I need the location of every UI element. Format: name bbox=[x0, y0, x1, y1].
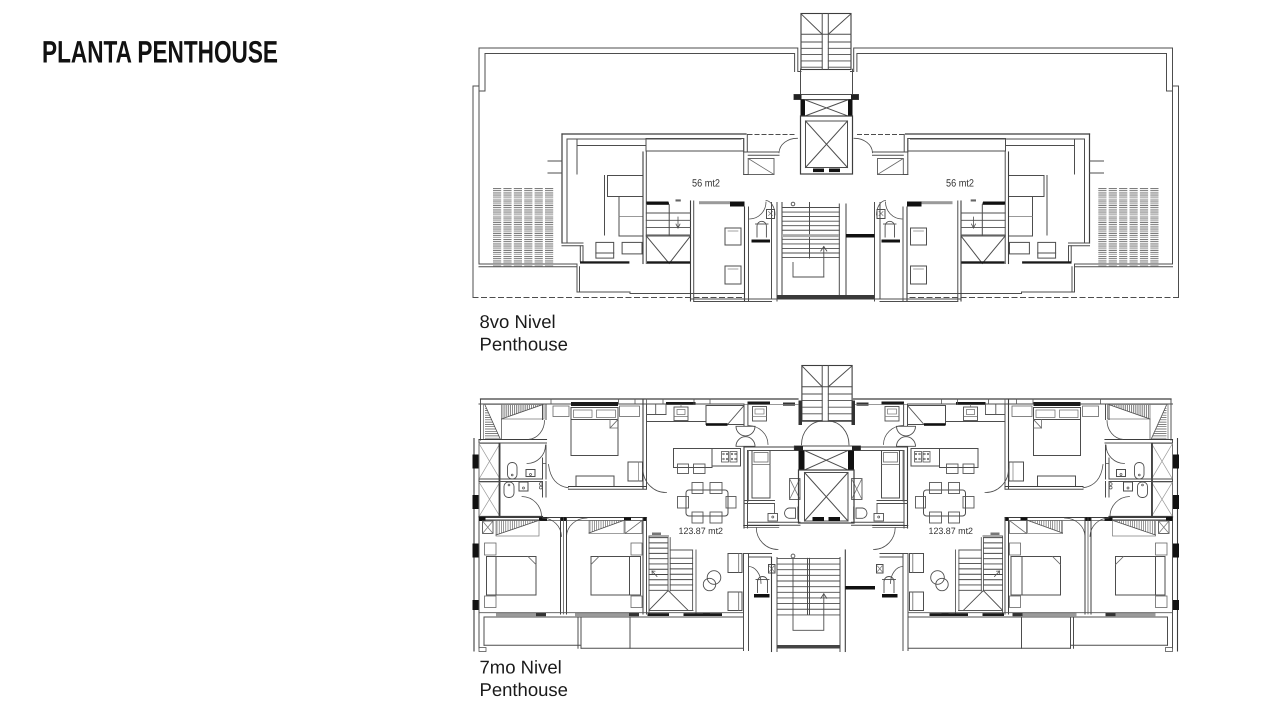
svg-text:56 mt2: 56 mt2 bbox=[946, 177, 974, 189]
svg-text:Penthouse: Penthouse bbox=[480, 679, 568, 700]
svg-text:PLANTA PENTHOUSE: PLANTA PENTHOUSE bbox=[42, 35, 278, 70]
svg-text:56 mt2: 56 mt2 bbox=[692, 177, 720, 189]
svg-text:123.87 mt2: 123.87 mt2 bbox=[929, 526, 974, 536]
svg-text:Penthouse: Penthouse bbox=[480, 334, 568, 355]
svg-text:8vo Nivel: 8vo Nivel bbox=[480, 311, 556, 332]
svg-text:123.87 mt2: 123.87 mt2 bbox=[679, 526, 724, 536]
svg-text:7mo Nivel: 7mo Nivel bbox=[480, 657, 562, 678]
